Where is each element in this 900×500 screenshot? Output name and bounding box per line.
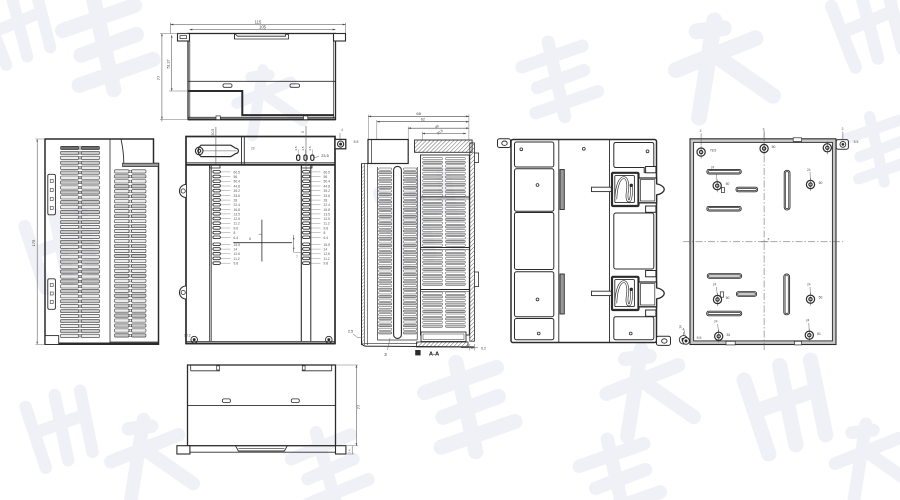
- svg-text:24: 24: [713, 283, 717, 287]
- svg-text:16.8: 16.8: [324, 208, 331, 212]
- svg-text:39.2: 39.2: [234, 189, 241, 193]
- svg-text:23: 23: [251, 147, 255, 151]
- svg-text:3: 3: [842, 127, 844, 131]
- svg-text:68: 68: [416, 111, 421, 116]
- svg-text:56: 56: [324, 175, 328, 179]
- svg-text:9.6: 9.6: [234, 226, 239, 230]
- svg-text:14: 14: [324, 248, 328, 252]
- svg-text:11.2: 11.2: [234, 222, 240, 226]
- svg-text:16.8: 16.8: [234, 208, 241, 212]
- svg-text:A-A: A-A: [429, 352, 440, 358]
- svg-text:22.4: 22.4: [234, 203, 241, 207]
- svg-text:5.5: 5.5: [697, 336, 702, 340]
- svg-text:2.5: 2.5: [348, 330, 353, 334]
- svg-text:3: 3: [384, 352, 387, 357]
- svg-text:24: 24: [714, 320, 718, 324]
- svg-text:51.37: 51.37: [167, 60, 171, 69]
- svg-text:8: 8: [249, 237, 251, 241]
- svg-text:44.8: 44.8: [234, 184, 241, 188]
- svg-text:50: 50: [726, 296, 730, 300]
- svg-text:39.2: 39.2: [324, 189, 331, 193]
- svg-text:62: 62: [421, 118, 425, 122]
- svg-text:60.5: 60.5: [324, 170, 331, 174]
- svg-text:6.2: 6.2: [481, 346, 486, 350]
- svg-text:3: 3: [700, 129, 702, 133]
- svg-text:11.2: 11.2: [234, 257, 240, 261]
- svg-text:10.2: 10.2: [184, 334, 191, 338]
- svg-text:30.5: 30.5: [436, 129, 444, 136]
- svg-text:12.5: 12.5: [234, 217, 241, 221]
- svg-text:15.5: 15.5: [324, 243, 331, 247]
- svg-text:9.8: 9.8: [234, 262, 239, 266]
- svg-text:77: 77: [356, 404, 361, 409]
- svg-text:5: 5: [301, 131, 305, 133]
- svg-text:11.2: 11.2: [324, 222, 330, 226]
- svg-text:12.6: 12.6: [234, 252, 241, 256]
- svg-text:11.2: 11.2: [324, 257, 330, 261]
- svg-text:24: 24: [711, 166, 715, 170]
- svg-text:46: 46: [434, 124, 439, 130]
- svg-text:5.5: 5.5: [854, 140, 859, 144]
- svg-text:7: 7: [296, 255, 298, 259]
- svg-text:9.6: 9.6: [324, 226, 329, 230]
- svg-text:5.5: 5.5: [354, 140, 359, 144]
- svg-text:50: 50: [819, 296, 823, 300]
- svg-text:80: 80: [772, 145, 776, 149]
- svg-text:9.8: 9.8: [324, 262, 329, 266]
- svg-text:3.5: 3.5: [308, 146, 312, 151]
- svg-text:50.4: 50.4: [324, 180, 331, 184]
- svg-text:77: 77: [156, 75, 161, 80]
- svg-text:8: 8: [234, 231, 236, 235]
- svg-text:6.4: 6.4: [324, 236, 329, 240]
- svg-text:50: 50: [726, 182, 730, 186]
- svg-text:9: 9: [763, 128, 765, 132]
- svg-text:33.6: 33.6: [234, 194, 241, 198]
- svg-text:6.4: 6.4: [234, 236, 239, 240]
- svg-text:8: 8: [324, 231, 326, 235]
- svg-text:30.5: 30.5: [211, 129, 215, 136]
- svg-text:44.8: 44.8: [324, 184, 331, 188]
- svg-text:22.4: 22.4: [324, 203, 331, 207]
- svg-text:60.5: 60.5: [234, 170, 241, 174]
- svg-text:81: 81: [817, 332, 821, 336]
- svg-text:3.5: 3.5: [294, 146, 298, 151]
- svg-text:33.6: 33.6: [324, 194, 331, 198]
- svg-text:50: 50: [819, 181, 823, 185]
- svg-text:56: 56: [234, 175, 238, 179]
- svg-text:12.5: 12.5: [324, 217, 331, 221]
- svg-text:13.5: 13.5: [234, 212, 241, 216]
- svg-text:50.4: 50.4: [234, 180, 241, 184]
- svg-text:13.5: 13.5: [324, 212, 331, 216]
- svg-text:12.6: 12.6: [324, 252, 331, 256]
- svg-text:24: 24: [807, 168, 811, 172]
- svg-text:7.4: 7.4: [348, 449, 352, 454]
- svg-text:15.5: 15.5: [234, 243, 241, 247]
- svg-text:23.5: 23.5: [321, 154, 328, 158]
- svg-text:28: 28: [324, 199, 328, 203]
- svg-text:24: 24: [807, 283, 811, 287]
- svg-text:14: 14: [234, 248, 238, 252]
- svg-text:78.5: 78.5: [710, 149, 717, 153]
- svg-text:24: 24: [806, 319, 810, 323]
- svg-text:105: 105: [259, 24, 267, 29]
- svg-text:28: 28: [234, 199, 238, 203]
- svg-text:4: 4: [341, 128, 343, 132]
- svg-text:3.5: 3.5: [301, 146, 305, 151]
- svg-text:81: 81: [727, 333, 731, 337]
- svg-text:14: 14: [679, 325, 683, 329]
- svg-text:175: 175: [31, 239, 36, 246]
